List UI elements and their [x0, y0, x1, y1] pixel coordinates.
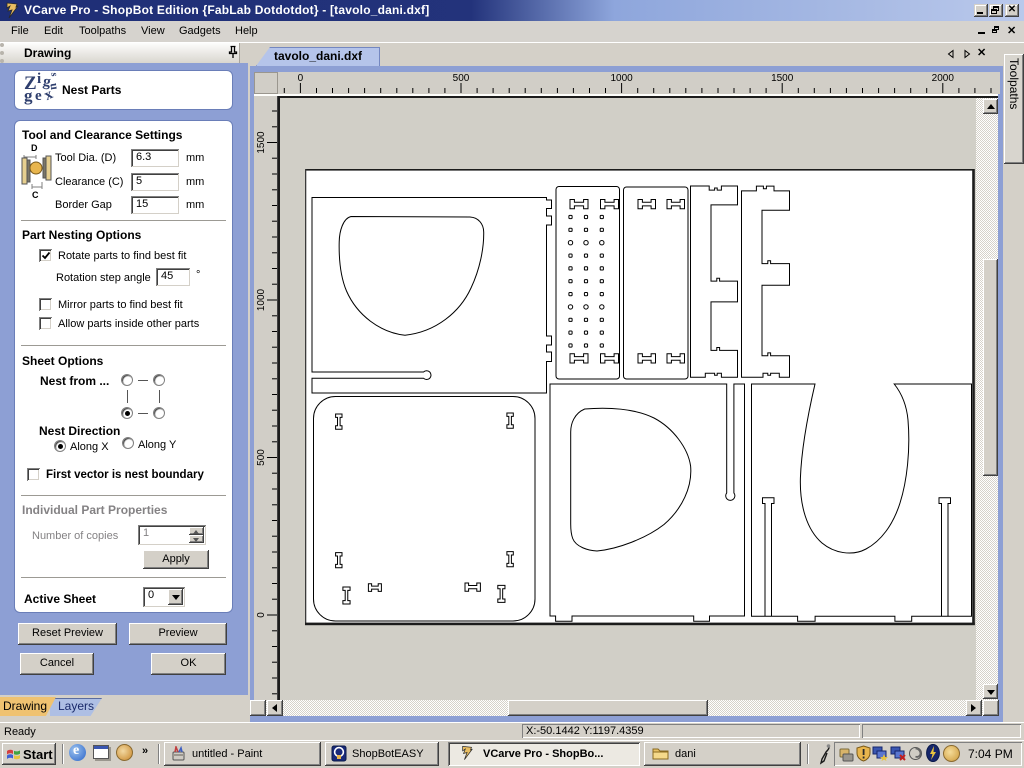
svg-text:D: D — [31, 143, 38, 153]
svg-text:1000: 1000 — [256, 288, 267, 311]
svg-text:500: 500 — [453, 73, 470, 84]
svg-text:1500: 1500 — [256, 131, 267, 154]
svg-text:1500: 1500 — [771, 73, 794, 84]
svg-text:2000: 2000 — [932, 73, 955, 84]
svg-text:1000: 1000 — [610, 73, 633, 84]
svg-text:500: 500 — [256, 449, 267, 466]
svg-text:0: 0 — [256, 612, 267, 618]
svg-text:C: C — [32, 190, 39, 199]
svg-text:0: 0 — [298, 73, 304, 84]
